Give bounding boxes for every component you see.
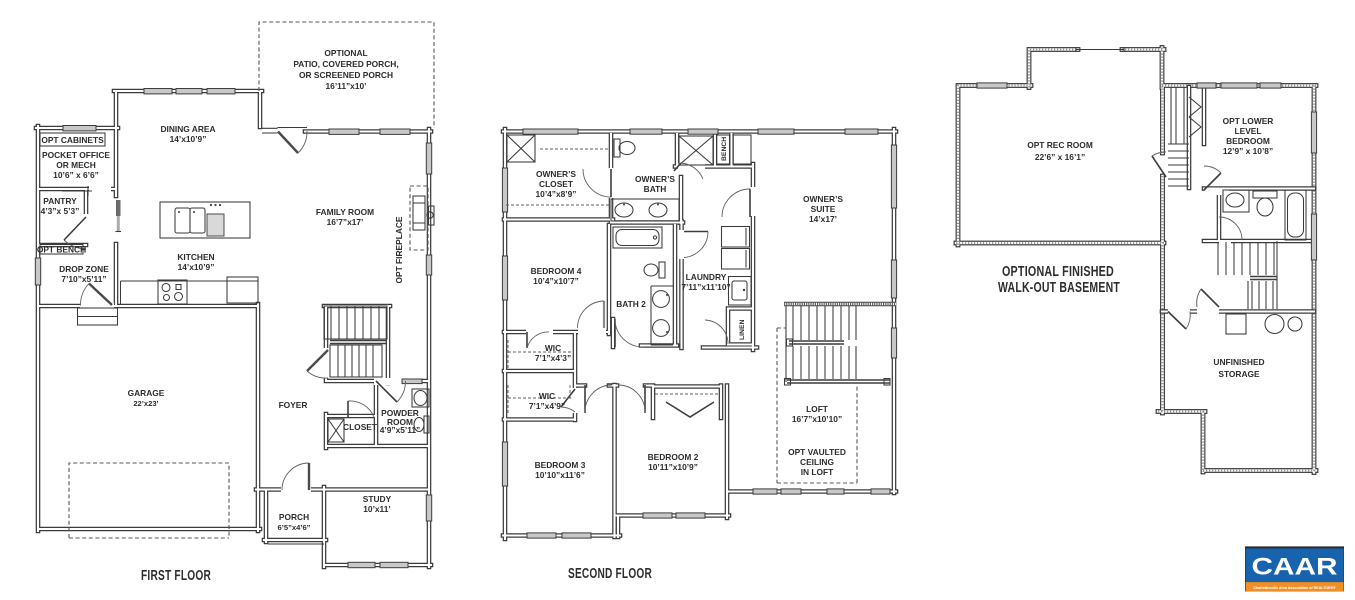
- svg-text:CLOSET: CLOSET: [343, 422, 378, 432]
- svg-text:10’x11’: 10’x11’: [363, 504, 390, 514]
- svg-text:CEILING: CEILING: [800, 457, 834, 467]
- svg-text:16’7”x17’: 16’7”x17’: [327, 217, 364, 227]
- svg-text:CAAR: CAAR: [1252, 554, 1338, 581]
- svg-text:BATH 2: BATH 2: [616, 299, 646, 309]
- svg-text:STORAGE: STORAGE: [1218, 369, 1260, 379]
- svg-text:WALK-OUT BASEMENT: WALK-OUT BASEMENT: [998, 280, 1120, 296]
- svg-text:4’3”x 5’3”: 4’3”x 5’3”: [41, 206, 80, 216]
- svg-text:4’9”x5’11”: 4’9”x5’11”: [380, 425, 421, 435]
- svg-text:14’x17’: 14’x17’: [809, 214, 837, 224]
- svg-text:WIC: WIC: [545, 343, 561, 353]
- svg-text:7’10”x5’11”: 7’10”x5’11”: [61, 274, 106, 284]
- svg-text:14’x10’9”: 14’x10’9”: [170, 134, 207, 144]
- svg-text:BEDROOM 4: BEDROOM 4: [531, 266, 582, 276]
- svg-text:BEDROOM: BEDROOM: [1226, 136, 1270, 146]
- svg-text:STUDY: STUDY: [363, 494, 392, 504]
- svg-text:12’9” x 10’8”: 12’9” x 10’8”: [1223, 146, 1273, 156]
- svg-text:PORCH: PORCH: [279, 512, 309, 522]
- svg-text:10’10”x11’6”: 10’10”x11’6”: [535, 470, 585, 480]
- svg-text:22’x23’: 22’x23’: [133, 399, 158, 408]
- svg-text:BEDROOM 3: BEDROOM 3: [535, 460, 586, 470]
- svg-text:DROP ZONE: DROP ZONE: [59, 264, 109, 274]
- svg-text:FIRST FLOOR: FIRST FLOOR: [141, 568, 211, 584]
- svg-text:UNFINISHED: UNFINISHED: [1213, 357, 1264, 367]
- svg-text:BEDROOM 2: BEDROOM 2: [648, 452, 699, 462]
- svg-text:OPT FIREPLACE: OPT FIREPLACE: [394, 216, 404, 283]
- svg-text:22’6” x 16’1”: 22’6” x 16’1”: [1035, 152, 1085, 162]
- svg-text:PATIO, COVERED PORCH,: PATIO, COVERED PORCH,: [293, 59, 398, 69]
- svg-text:OPT VAULTED: OPT VAULTED: [788, 447, 846, 457]
- svg-text:Charlottesville Area Associati: Charlottesville Area Association of REAL…: [1253, 586, 1336, 590]
- svg-text:FOYER: FOYER: [279, 400, 308, 410]
- svg-text:16’7”x10’10”: 16’7”x10’10”: [792, 414, 842, 424]
- svg-text:7’11”x11’10”: 7’11”x11’10”: [681, 282, 730, 292]
- svg-text:OWNER’S: OWNER’S: [803, 194, 843, 204]
- svg-text:OR SCREENED PORCH: OR SCREENED PORCH: [299, 70, 393, 80]
- svg-text:OPTIONAL FINISHED: OPTIONAL FINISHED: [1002, 264, 1114, 280]
- svg-text:IN LOFT: IN LOFT: [801, 467, 834, 477]
- svg-text:CLOSET: CLOSET: [539, 179, 574, 189]
- svg-text:SUITE: SUITE: [811, 204, 836, 214]
- svg-text:OWNER’S: OWNER’S: [536, 169, 576, 179]
- svg-text:FAMILY ROOM: FAMILY ROOM: [316, 207, 374, 217]
- svg-text:BATH: BATH: [644, 184, 667, 194]
- svg-text:OPT BENCH: OPT BENCH: [37, 245, 86, 255]
- svg-text:6’5”x4’6”: 6’5”x4’6”: [278, 523, 311, 532]
- svg-text:10’4”x8’9”: 10’4”x8’9”: [536, 189, 577, 199]
- svg-text:KITCHEN: KITCHEN: [177, 252, 214, 262]
- svg-text:OWNER’S: OWNER’S: [635, 174, 675, 184]
- svg-text:16’11”x10’: 16’11”x10’: [326, 81, 367, 91]
- svg-text:PANTRY: PANTRY: [43, 196, 77, 206]
- svg-text:10’4”x10’7”: 10’4”x10’7”: [533, 276, 579, 286]
- svg-text:OPTIONAL: OPTIONAL: [324, 48, 367, 58]
- svg-text:OPT LOWER: OPT LOWER: [1223, 116, 1274, 126]
- svg-text:SECOND FLOOR: SECOND FLOOR: [568, 566, 652, 582]
- svg-text:OR MECH: OR MECH: [56, 160, 96, 170]
- svg-text:LEVEL: LEVEL: [1235, 126, 1262, 136]
- svg-text:POCKET OFFICE: POCKET OFFICE: [42, 150, 110, 160]
- svg-text:BENCH: BENCH: [721, 137, 728, 161]
- svg-text:WIC: WIC: [539, 391, 555, 401]
- svg-text:GARAGE: GARAGE: [128, 388, 165, 398]
- svg-text:OPT REC ROOM: OPT REC ROOM: [1027, 140, 1093, 150]
- svg-text:LAUNDRY: LAUNDRY: [686, 272, 727, 282]
- svg-text:OPT CABINETS: OPT CABINETS: [41, 135, 104, 145]
- svg-text:10’11”x10’9”: 10’11”x10’9”: [648, 462, 698, 472]
- svg-text:LOFT: LOFT: [806, 404, 829, 414]
- svg-text:10’6” x 6’6”: 10’6” x 6’6”: [53, 170, 99, 180]
- svg-text:7’1”x4’9”: 7’1”x4’9”: [529, 401, 565, 411]
- svg-text:7’1”x4’3”: 7’1”x4’3”: [535, 353, 571, 363]
- svg-text:14’x10’9”: 14’x10’9”: [178, 262, 215, 272]
- svg-text:LINEN: LINEN: [739, 320, 746, 340]
- svg-text:DINING AREA: DINING AREA: [160, 124, 215, 134]
